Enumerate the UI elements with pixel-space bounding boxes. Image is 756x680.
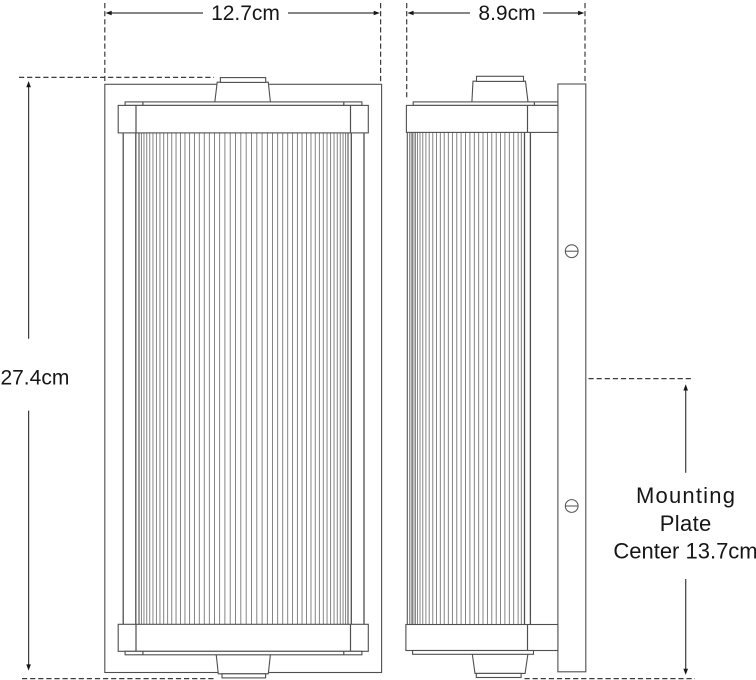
svg-text:Plate: Plate	[660, 511, 712, 536]
svg-text:Mounting: Mounting	[636, 483, 736, 508]
svg-text:27.4cm: 27.4cm	[0, 366, 69, 389]
svg-text:Center 13.7cm: Center 13.7cm	[613, 538, 756, 563]
svg-text:8.9cm: 8.9cm	[478, 2, 535, 25]
svg-text:12.7cm: 12.7cm	[211, 2, 280, 25]
